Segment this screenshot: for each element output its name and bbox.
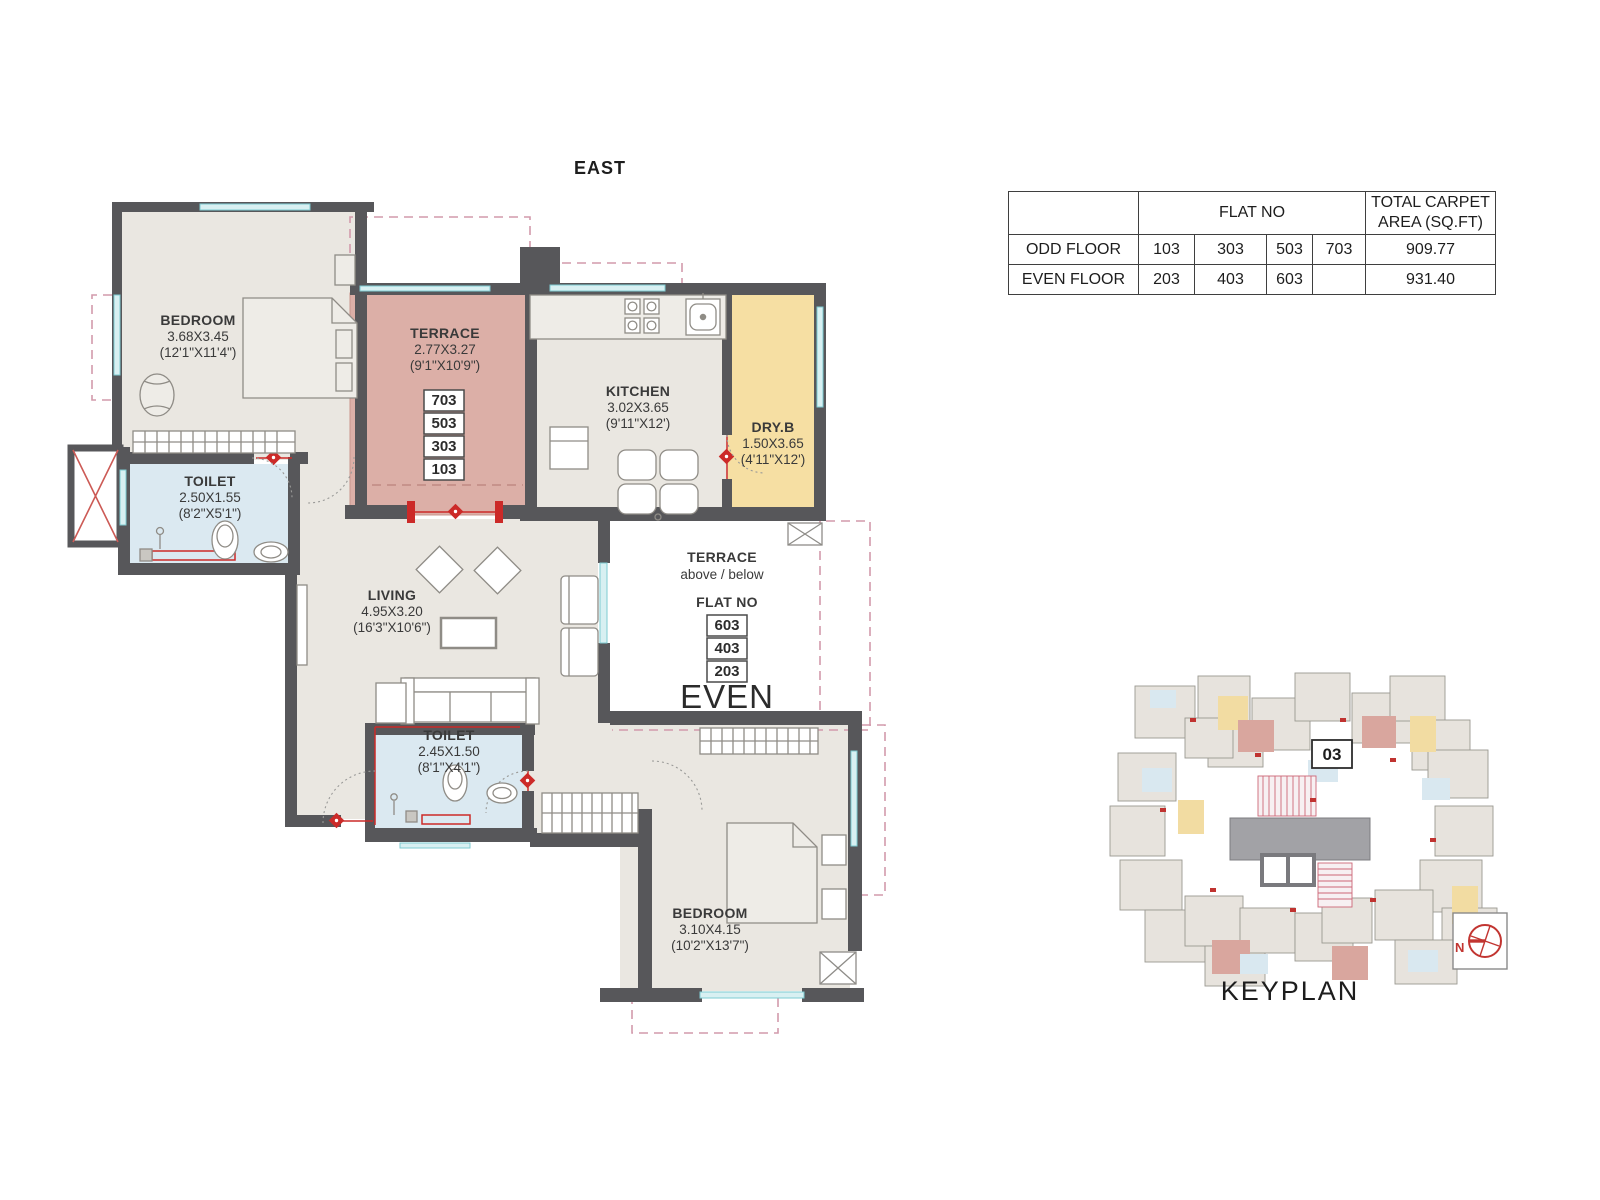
flat-no-header: FLAT NO — [1139, 192, 1366, 235]
table-corner-cell — [1009, 192, 1139, 235]
toilet1-name: TOILET — [184, 473, 235, 489]
keyplan-label: KEYPLAN — [1140, 976, 1440, 1007]
toilet2-dim: 2.45X1.50 — [418, 744, 480, 759]
bedroom2-dim: 3.10X4.15 — [679, 922, 741, 937]
even-flat-2: 403 — [1195, 265, 1267, 295]
dry-balcony-dim: 1.50X3.65 — [742, 436, 804, 451]
terrace-ab-name: TERRACE — [687, 549, 757, 565]
bedroom2-dim-ft: (10'2"X13'7") — [671, 938, 749, 953]
bedroom2-name: BEDROOM — [672, 905, 747, 921]
dry-balcony-name: DRY.B — [752, 419, 795, 435]
even-floor-word: EVEN — [680, 678, 774, 715]
terrace-ab-flat-403: 403 — [714, 640, 739, 657]
terrace-dim: 2.77X3.27 — [414, 342, 476, 357]
room-kitchen: KITCHEN 3.02X3.65 (9'11"X12') — [606, 383, 670, 431]
room-toilet-2: TOILET 2.45X1.50 (8'1"X4'1") — [418, 727, 481, 775]
keyplan-unit-03-box: 03 — [1312, 740, 1352, 768]
terrace-flat-503: 503 — [431, 415, 456, 432]
flat-area-table: FLAT NO TOTAL CARPET AREA (SQ.FT) ODD FL… — [1008, 191, 1496, 295]
dry-balcony-dim-ft: (4'11"X12') — [741, 452, 805, 467]
terrace-flat-303: 303 — [431, 438, 456, 455]
odd-flat-3: 503 — [1267, 235, 1313, 265]
even-flat-1: 203 — [1139, 265, 1195, 295]
odd-flat-1: 103 — [1139, 235, 1195, 265]
keyplan: 03 — [1090, 658, 1510, 988]
terrace-ab-flat-no-boxes: 603 403 203 — [707, 615, 747, 682]
odd-floor-label: ODD FLOOR — [1009, 235, 1139, 265]
terrace-dim-ft: (9'1"X10'9") — [410, 358, 480, 373]
bedroom1-dim-ft: (12'1"X11'4") — [160, 345, 237, 360]
room-bedroom-2: BEDROOM 3.10X4.15 (10'2"X13'7") — [671, 905, 749, 953]
terrace-ab-sub: above / below — [680, 567, 764, 582]
even-floor-area: 931.40 — [1366, 265, 1496, 295]
area-header: TOTAL CARPET AREA (SQ.FT) — [1366, 192, 1496, 235]
room-toilet-1: TOILET 2.50X1.55 (8'2"X5'1") — [179, 473, 242, 521]
toilet2-dim-ft: (8'1"X4'1") — [418, 760, 481, 775]
keyplan-unit-03-label: 03 — [1323, 745, 1342, 764]
table-row-even-floor: EVEN FLOOR 203 403 603 931.40 — [1009, 265, 1496, 295]
terrace-flat-703: 703 — [431, 392, 456, 409]
north-letter: N — [1455, 940, 1464, 955]
toilet2-name: TOILET — [423, 727, 474, 743]
living-dim-ft: (16'3"X10'6") — [353, 620, 431, 635]
terrace-flat-103: 103 — [431, 461, 456, 478]
terrace-name: TERRACE — [410, 325, 480, 341]
toilet1-dim: 2.50X1.55 — [179, 490, 241, 505]
odd-floor-area: 909.77 — [1366, 235, 1496, 265]
kitchen-name: KITCHEN — [606, 383, 670, 399]
bedroom1-dim: 3.68X3.45 — [167, 329, 229, 344]
living-dim: 4.95X3.20 — [361, 604, 423, 619]
kitchen-dim: 3.02X3.65 — [607, 400, 669, 415]
odd-flat-2: 303 — [1195, 235, 1267, 265]
page: EAST — [0, 0, 1600, 1200]
north-compass: N — [1452, 912, 1508, 970]
east-label: EAST — [500, 158, 700, 179]
even-flat-4 — [1313, 265, 1366, 295]
terrace-ab-flat-no-label: FLAT NO — [696, 594, 758, 610]
floor-plan: BEDROOM 3.68X3.45 (12'1"X11'4") TERRACE … — [60, 195, 900, 1040]
odd-flat-4: 703 — [1313, 235, 1366, 265]
room-bedroom-1: BEDROOM 3.68X3.45 (12'1"X11'4") — [160, 312, 237, 360]
living-name: LIVING — [368, 587, 416, 603]
kitchen-dim-ft: (9'11"X12') — [606, 416, 670, 431]
keyplan-core — [1230, 776, 1370, 907]
even-floor-label: EVEN FLOOR — [1009, 265, 1139, 295]
duct-shaft — [71, 448, 120, 544]
terrace-ab-flat-603: 603 — [714, 617, 739, 634]
toilet1-dim-ft: (8'2"X5'1") — [179, 506, 242, 521]
even-flat-3: 603 — [1267, 265, 1313, 295]
bedroom1-name: BEDROOM — [160, 312, 235, 328]
table-row-odd-floor: ODD FLOOR 103 303 503 703 909.77 — [1009, 235, 1496, 265]
